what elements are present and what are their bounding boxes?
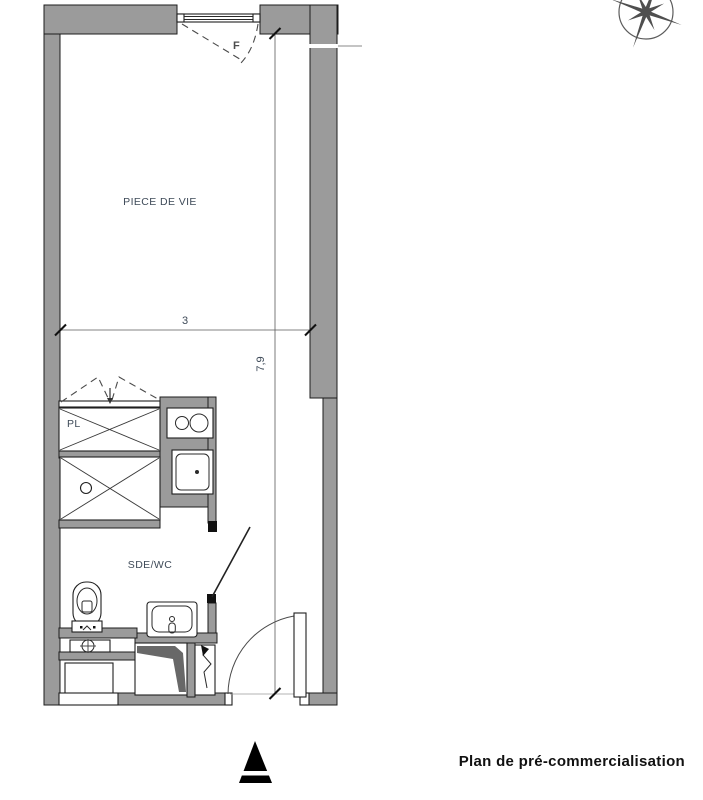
sink-drain [195,470,199,474]
wall-right-upper [310,5,337,398]
closet-pl [59,377,160,451]
shower-tray [60,457,160,520]
bathroom-door-leaf [212,527,250,597]
page-title: Plan de pré-commercialisation [459,753,685,770]
north-arrow-icon [239,741,272,783]
wall-bottom-right [308,693,337,705]
window-label: F [233,40,240,52]
window-f [177,14,260,64]
folding-door-left [61,377,109,402]
wall-top-left [44,5,177,34]
closet-label: PL [67,418,81,430]
wall-joint-gap [309,44,338,48]
washing-machine-slot [65,663,113,695]
height-dimension-label: 7,9 [255,356,267,371]
living-room-label: PIECE DE VIE [123,196,197,208]
bathroom-label: SDE/WC [128,559,172,571]
wall-right-lower [323,398,337,705]
kitchenette [167,408,213,494]
floor-plan-drawing: PIECE DE VIE PL SDE/WC 3 7,9 F [0,0,703,800]
compass-rose-icon [610,0,681,48]
window-jamb-left [177,14,184,22]
entrance-door-leaf [294,613,306,697]
window-swing-arc [240,24,258,64]
wall-left [44,5,60,705]
partition-bath-stub [208,603,216,634]
shower-drain [81,483,92,494]
partition-shower-bath [59,520,160,528]
bottom-bay [59,693,118,705]
counter-bottom-edge [59,652,137,660]
technical-shaft [135,643,215,695]
width-dimension-label: 3 [182,315,188,327]
door-jamb-left [225,693,232,705]
partition-shaft [187,643,195,697]
washbasin [147,602,197,637]
toilet [72,582,102,632]
floor-plan-page: PIECE DE VIE PL SDE/WC 3 7,9 F Plan de p… [0,0,703,800]
kitchen-sink [172,450,213,494]
vanity-counter [70,639,110,653]
dimension-height [270,28,281,699]
folding-door-right [112,377,158,400]
entrance-door-swing [228,616,294,694]
bathroom-door [207,521,250,603]
entrance-door [228,613,306,697]
window-jamb-right [253,14,260,22]
